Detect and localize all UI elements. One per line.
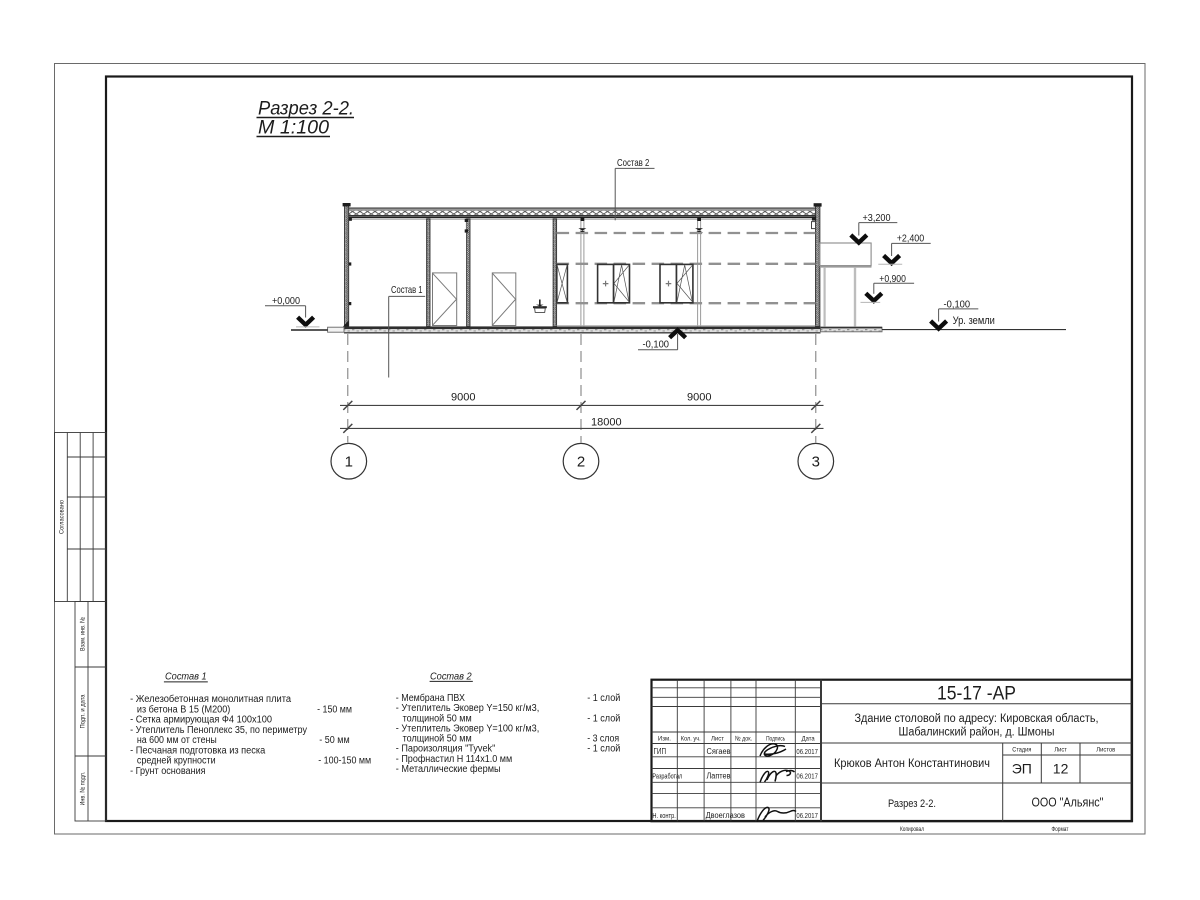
svg-text:Листов: Листов <box>1096 747 1115 754</box>
svg-text:Согласовано: Согласовано <box>59 500 66 534</box>
svg-text:из бетона В 15 (М200): из бетона В 15 (М200) <box>137 703 230 715</box>
svg-text:2: 2 <box>577 454 585 471</box>
svg-text:ЭП: ЭП <box>1012 761 1032 777</box>
svg-text:Стадия: Стадия <box>1012 747 1031 754</box>
svg-text:- Грунт основания: - Грунт основания <box>130 766 206 777</box>
svg-text:ООО "Альянс": ООО "Альянс" <box>1032 796 1104 810</box>
svg-text:Разрез 2-2.: Разрез 2-2. <box>888 798 936 810</box>
svg-text:15-17 -АР: 15-17 -АР <box>937 684 1016 705</box>
svg-text:3: 3 <box>812 454 820 471</box>
svg-text:9000: 9000 <box>451 391 475 403</box>
svg-text:Копировал: Копировал <box>900 826 924 833</box>
svg-text:+0,000: +0,000 <box>272 296 300 307</box>
svg-text:Инв. № подл.: Инв. № подл. <box>80 771 87 805</box>
svg-text:1: 1 <box>345 454 353 471</box>
svg-text:Здание столовой по адресу: Кир: Здание столовой по адресу: Кировская обл… <box>855 713 1099 725</box>
svg-text:Формат: Формат <box>1052 826 1069 833</box>
svg-text:- Железобетонная монолитная п: - Железобетонная монолитная плита <box>130 693 291 705</box>
svg-text:№ док.: № док. <box>735 736 752 743</box>
svg-text:- 50 мм: - 50 мм <box>319 735 350 746</box>
svg-text:Состав 1: Состав 1 <box>165 672 207 683</box>
svg-text:Разработал: Разработал <box>652 772 682 781</box>
svg-text:- 1 слой: - 1 слой <box>587 744 620 755</box>
svg-text:- 150 мм: - 150 мм <box>317 704 352 715</box>
svg-text:Состав 2: Состав 2 <box>617 158 650 169</box>
svg-text:Лист: Лист <box>711 736 724 743</box>
svg-text:- 1 слой: - 1 слой <box>587 693 620 704</box>
svg-text:18000: 18000 <box>591 416 622 428</box>
svg-text:Двоеглазов: Двоеглазов <box>706 811 745 820</box>
svg-text:Состав 2: Состав 2 <box>430 672 472 683</box>
svg-text:- Металлические фермы: - Металлические фермы <box>396 763 501 775</box>
svg-text:+2,400: +2,400 <box>897 234 925 245</box>
svg-text:06.2017: 06.2017 <box>796 747 818 756</box>
svg-text:Подп. и дата: Подп. и дата <box>80 694 87 728</box>
svg-text:Изм.: Изм. <box>658 736 671 743</box>
svg-text:- 1 слой: - 1 слой <box>587 713 620 724</box>
svg-text:Лист: Лист <box>1054 747 1067 754</box>
svg-text:Шабалинский район, д. Шмоны: Шабалинский район, д. Шмоны <box>899 727 1055 739</box>
svg-text:06.2017: 06.2017 <box>796 772 818 781</box>
svg-text:- 100-150 мм: - 100-150 мм <box>318 756 371 767</box>
svg-text:Ур. земли: Ур. земли <box>953 315 995 327</box>
svg-text:-0,100: -0,100 <box>643 340 670 351</box>
svg-text:06.2017: 06.2017 <box>796 811 818 820</box>
svg-text:Крюков Антон Константинович: Крюков Антон Константинович <box>834 758 990 770</box>
svg-text:ГИП: ГИП <box>654 747 667 756</box>
svg-text:Лаптев: Лаптев <box>707 772 731 781</box>
svg-text:Сягаев: Сягаев <box>707 747 731 756</box>
svg-text:Дата: Дата <box>802 736 815 743</box>
svg-text:М 1:100: М 1:100 <box>258 117 329 139</box>
svg-text:Подпись: Подпись <box>766 736 785 743</box>
svg-text:Н. контр.: Н. контр. <box>652 811 676 820</box>
svg-text:толщиной 50 мм: толщиной 50 мм <box>403 713 472 724</box>
svg-text:Состав 1: Состав 1 <box>391 285 423 296</box>
svg-text:- Профнастил Н 114х1.0 мм: - Профнастил Н 114х1.0 мм <box>396 753 513 765</box>
svg-text:Взам. инв. №: Взам. инв. № <box>80 617 87 651</box>
svg-text:12: 12 <box>1053 761 1069 777</box>
svg-text:- Мембрана ПВХ: - Мембрана ПВХ <box>396 692 465 704</box>
svg-text:Кол. уч.: Кол. уч. <box>681 736 701 743</box>
svg-text:9000: 9000 <box>687 391 711 403</box>
